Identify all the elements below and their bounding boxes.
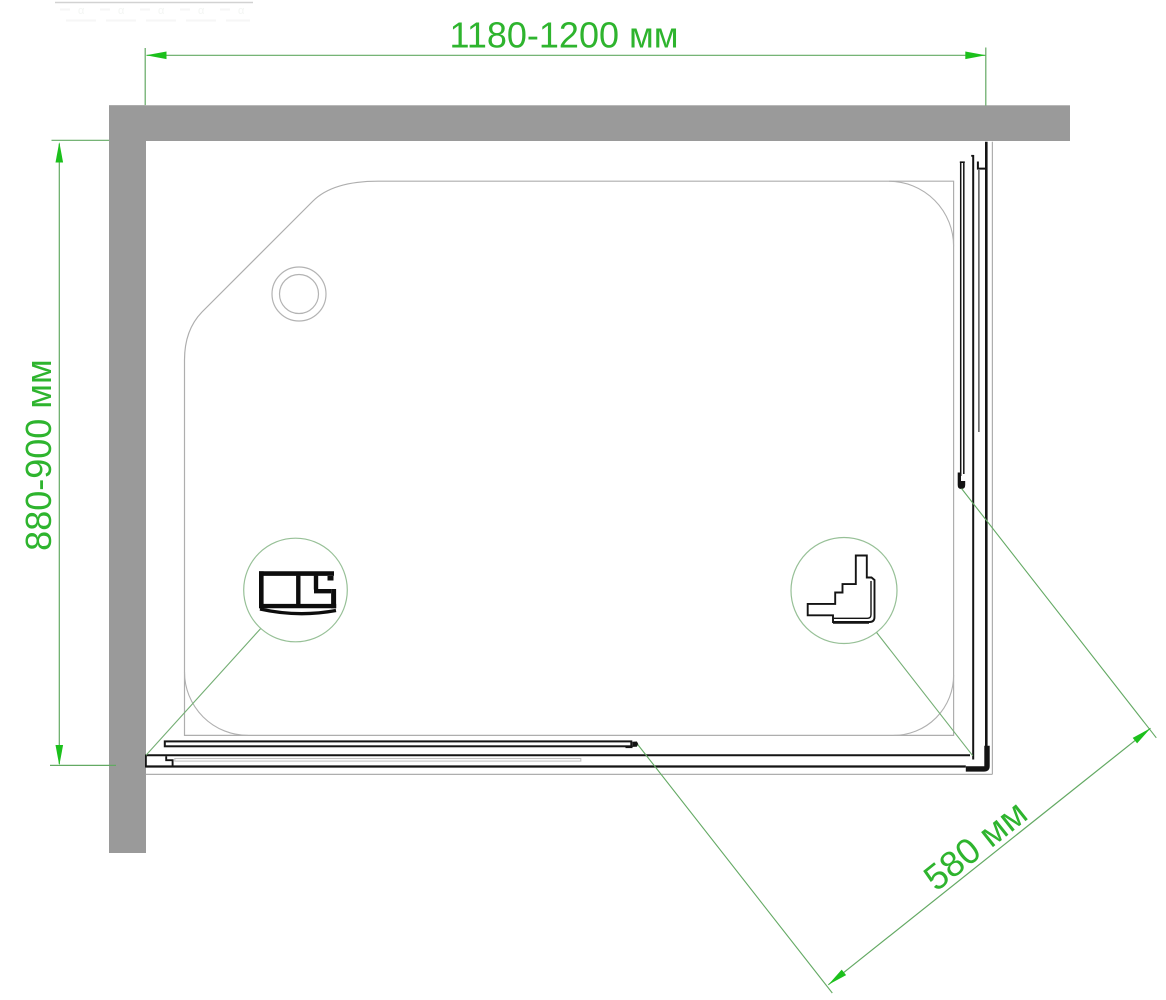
- svg-text:α: α: [158, 5, 165, 17]
- svg-text:α: α: [198, 5, 205, 17]
- svg-text:1180-1200 мм: 1180-1200 мм: [450, 15, 679, 56]
- svg-text:α: α: [78, 5, 85, 17]
- svg-text:α: α: [118, 5, 125, 17]
- svg-text:880-900 мм: 880-900 мм: [18, 359, 59, 551]
- svg-text:α: α: [238, 5, 245, 17]
- svg-text:580 мм: 580 мм: [916, 792, 1035, 899]
